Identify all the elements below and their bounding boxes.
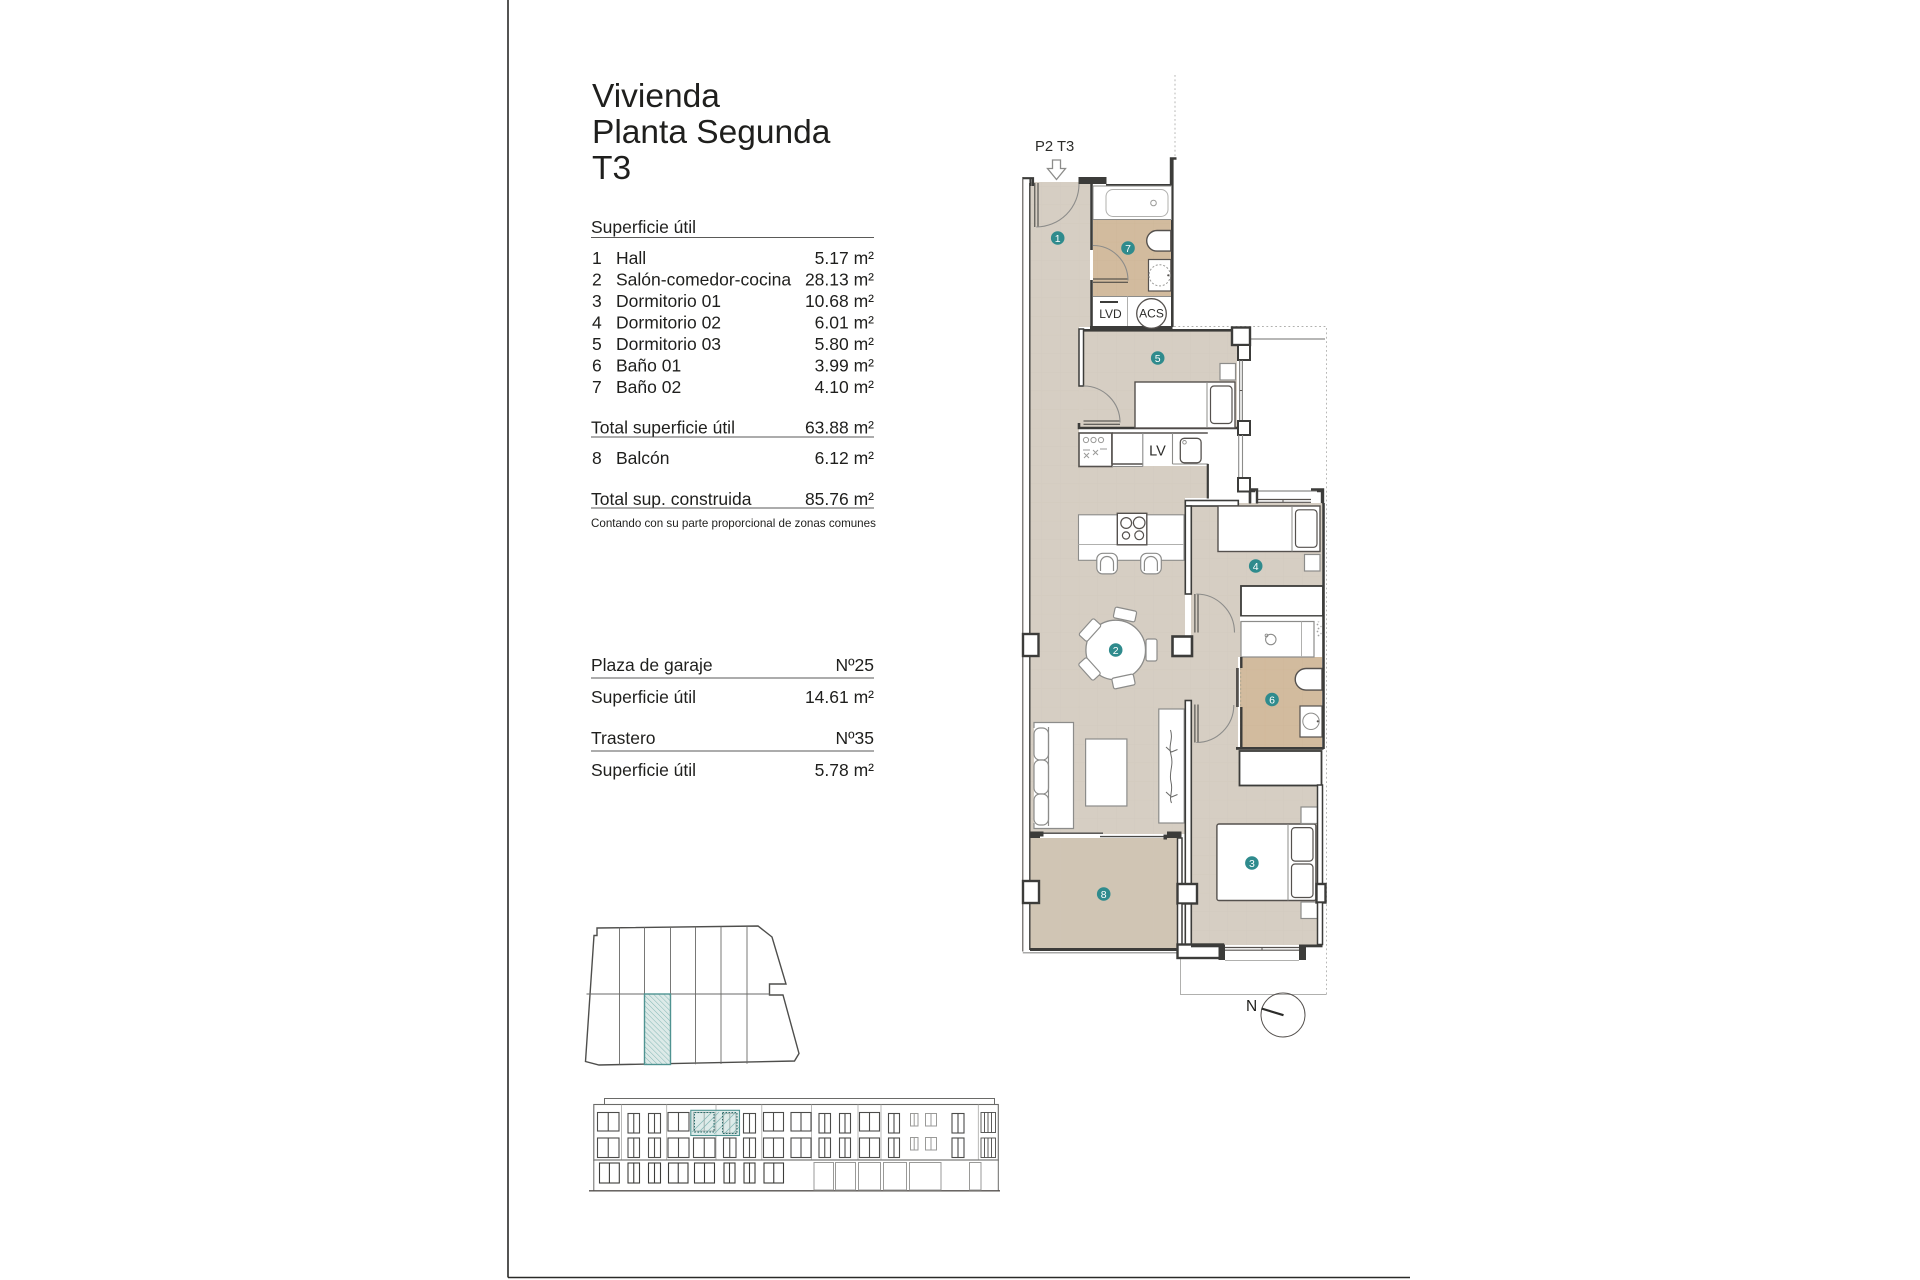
svg-text:3.99 m²: 3.99 m² <box>815 356 874 376</box>
svg-text:Salón-comedor-cocina: Salón-comedor-cocina <box>616 270 791 290</box>
svg-text:Superficie útil: Superficie útil <box>591 687 696 707</box>
svg-text:2: 2 <box>592 270 602 290</box>
svg-text:Nº35: Nº35 <box>836 728 875 748</box>
svg-text:Trastero: Trastero <box>591 728 656 748</box>
svg-text:P2 T3: P2 T3 <box>1035 139 1074 155</box>
svg-text:LVD: LVD <box>1099 307 1122 321</box>
svg-text:14.61 m²: 14.61 m² <box>805 687 874 707</box>
svg-text:Total superficie útil: Total superficie útil <box>591 418 735 438</box>
svg-text:Hall: Hall <box>616 248 646 268</box>
svg-text:6: 6 <box>1269 694 1275 706</box>
svg-text:Baño 01: Baño 01 <box>616 356 681 376</box>
svg-text:6: 6 <box>592 356 602 376</box>
svg-text:6.12 m²: 6.12 m² <box>815 448 874 468</box>
svg-text:Planta Segunda: Planta Segunda <box>592 114 831 151</box>
svg-text:Dormitorio 02: Dormitorio 02 <box>616 313 721 333</box>
svg-text:85.76 m²: 85.76 m² <box>805 489 874 509</box>
svg-text:Dormitorio 03: Dormitorio 03 <box>616 334 721 354</box>
svg-text:Nº25: Nº25 <box>836 655 875 675</box>
svg-text:Total sup. construida: Total sup. construida <box>591 489 752 509</box>
svg-text:Plaza de garaje: Plaza de garaje <box>591 655 713 675</box>
svg-text:5.17 m²: 5.17 m² <box>815 248 874 268</box>
svg-text:4: 4 <box>592 313 602 333</box>
svg-text:1: 1 <box>1055 233 1061 245</box>
svg-text:LV: LV <box>1149 444 1166 460</box>
svg-text:1: 1 <box>592 248 602 268</box>
svg-text:5.78 m²: 5.78 m² <box>815 760 874 780</box>
svg-text:5: 5 <box>1155 353 1161 365</box>
svg-text:7: 7 <box>1125 243 1131 255</box>
svg-text:Baño 02: Baño 02 <box>616 377 681 397</box>
svg-text:Balcón: Balcón <box>616 448 670 468</box>
svg-text:7: 7 <box>592 377 602 397</box>
svg-text:3: 3 <box>592 291 602 311</box>
svg-text:8: 8 <box>1101 889 1107 901</box>
svg-text:28.13 m²: 28.13 m² <box>805 270 874 290</box>
svg-text:5.80 m²: 5.80 m² <box>815 334 874 354</box>
svg-text:5: 5 <box>592 334 602 354</box>
svg-text:4.10 m²: 4.10 m² <box>815 377 874 397</box>
svg-text:T3: T3 <box>592 150 631 187</box>
svg-text:ACS: ACS <box>1139 307 1164 321</box>
svg-text:Superficie útil: Superficie útil <box>591 217 696 237</box>
svg-text:6.01 m²: 6.01 m² <box>815 313 874 333</box>
svg-text:2: 2 <box>1113 645 1119 657</box>
svg-text:10.68 m²: 10.68 m² <box>805 291 874 311</box>
svg-text:Contando con su parte proporci: Contando con su parte proporcional de zo… <box>591 517 876 530</box>
svg-text:Vivienda: Vivienda <box>592 78 720 115</box>
svg-text:3: 3 <box>1249 858 1255 870</box>
svg-text:4: 4 <box>1253 561 1259 573</box>
svg-text:Superficie útil: Superficie útil <box>591 760 696 780</box>
svg-text:Dormitorio 01: Dormitorio 01 <box>616 291 721 311</box>
svg-text:63.88 m²: 63.88 m² <box>805 418 874 438</box>
svg-text:N: N <box>1246 998 1257 1015</box>
svg-text:8: 8 <box>592 448 602 468</box>
